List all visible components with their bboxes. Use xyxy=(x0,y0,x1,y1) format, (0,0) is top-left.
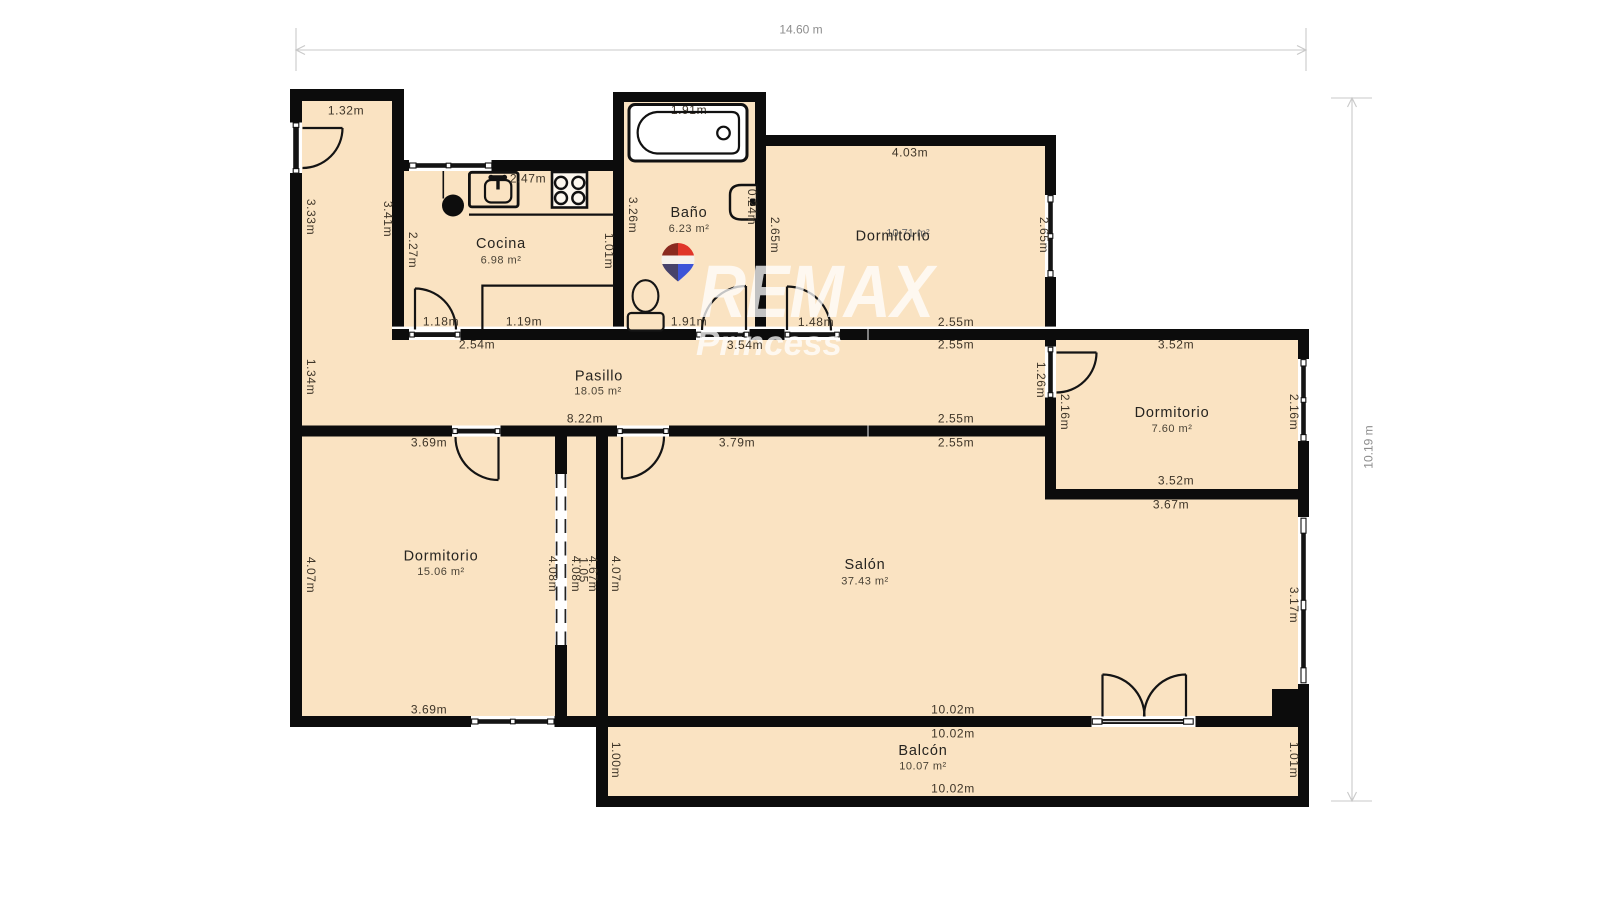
svg-text:Cocina: Cocina xyxy=(476,236,526,252)
svg-text:3.17m: 3.17m xyxy=(1287,587,1301,623)
svg-text:1.19m: 1.19m xyxy=(506,315,542,329)
svg-text:10.02m: 10.02m xyxy=(931,782,975,796)
svg-text:2.16m: 2.16m xyxy=(1287,394,1301,430)
svg-text:3.41m: 3.41m xyxy=(381,201,395,237)
svg-text:1.34m: 1.34m xyxy=(304,359,318,395)
svg-text:18.05 m²: 18.05 m² xyxy=(574,386,621,398)
svg-text:Princess: Princess xyxy=(696,324,842,363)
svg-text:7.60 m²: 7.60 m² xyxy=(1152,423,1193,435)
svg-text:Dormitorio: Dormitorio xyxy=(404,549,479,565)
svg-text:10.19 m: 10.19 m xyxy=(1362,425,1376,468)
svg-text:3.52m: 3.52m xyxy=(1158,474,1194,488)
svg-text:1.01m: 1.01m xyxy=(602,233,616,269)
svg-text:2.55m: 2.55m xyxy=(938,436,974,450)
svg-text:Dormitorio: Dormitorio xyxy=(1135,405,1210,421)
svg-text:3.67m: 3.67m xyxy=(1153,498,1189,512)
svg-text:Pasillo: Pasillo xyxy=(575,369,623,385)
svg-text:Baño: Baño xyxy=(670,205,707,221)
svg-text:3.33m: 3.33m xyxy=(304,199,318,235)
svg-text:4.03m: 4.03m xyxy=(892,146,928,160)
svg-text:0.24m: 0.24m xyxy=(745,189,759,225)
svg-text:1.01m: 1.01m xyxy=(1287,742,1301,778)
svg-text:14.60 m: 14.60 m xyxy=(779,23,822,37)
svg-text:37.43 m²: 37.43 m² xyxy=(841,576,888,588)
svg-text:3.52m: 3.52m xyxy=(1158,338,1194,352)
svg-text:4.08m: 4.08m xyxy=(546,556,560,592)
svg-text:1.48m: 1.48m xyxy=(798,315,834,329)
svg-text:15.06 m²: 15.06 m² xyxy=(417,566,464,578)
svg-text:1.18m: 1.18m xyxy=(423,315,459,329)
svg-text:10.02m: 10.02m xyxy=(931,727,975,741)
svg-text:10.07 m²: 10.07 m² xyxy=(899,761,946,773)
svg-text:2.55m: 2.55m xyxy=(938,315,974,329)
svg-text:6.98 m²: 6.98 m² xyxy=(481,255,522,267)
svg-text:2.65m: 2.65m xyxy=(1037,217,1051,253)
svg-text:3.54m: 3.54m xyxy=(727,338,763,352)
svg-text:2.47m: 2.47m xyxy=(510,172,546,186)
svg-text:3.26m: 3.26m xyxy=(626,197,640,233)
svg-text:3.79m: 3.79m xyxy=(719,436,755,450)
svg-text:Balcón: Balcón xyxy=(898,743,947,759)
svg-text:6.23 m²: 6.23 m² xyxy=(669,223,710,235)
svg-text:1.32m: 1.32m xyxy=(328,104,364,118)
svg-text:Salón: Salón xyxy=(844,557,885,573)
svg-text:4.67m: 4.67m xyxy=(586,556,600,592)
svg-text:3.69m: 3.69m xyxy=(411,703,447,717)
svg-text:2.54m: 2.54m xyxy=(459,338,495,352)
svg-text:Dormitorio: Dormitorio xyxy=(856,229,931,245)
svg-text:1.91m: 1.91m xyxy=(671,315,707,329)
svg-text:1.26m: 1.26m xyxy=(1034,362,1048,398)
svg-text:2.16m: 2.16m xyxy=(1058,394,1072,430)
svg-text:2.65m: 2.65m xyxy=(768,217,782,253)
svg-text:2.55m: 2.55m xyxy=(938,338,974,352)
svg-text:8.22m: 8.22m xyxy=(567,412,603,426)
svg-text:2.27m: 2.27m xyxy=(406,232,420,268)
svg-text:1.00m: 1.00m xyxy=(609,742,623,778)
svg-text:3.69m: 3.69m xyxy=(411,436,447,450)
svg-text:2.55m: 2.55m xyxy=(938,412,974,426)
svg-text:4.07m: 4.07m xyxy=(304,557,318,593)
svg-text:4.07m: 4.07m xyxy=(609,556,623,592)
svg-text:10.02m: 10.02m xyxy=(931,703,975,717)
